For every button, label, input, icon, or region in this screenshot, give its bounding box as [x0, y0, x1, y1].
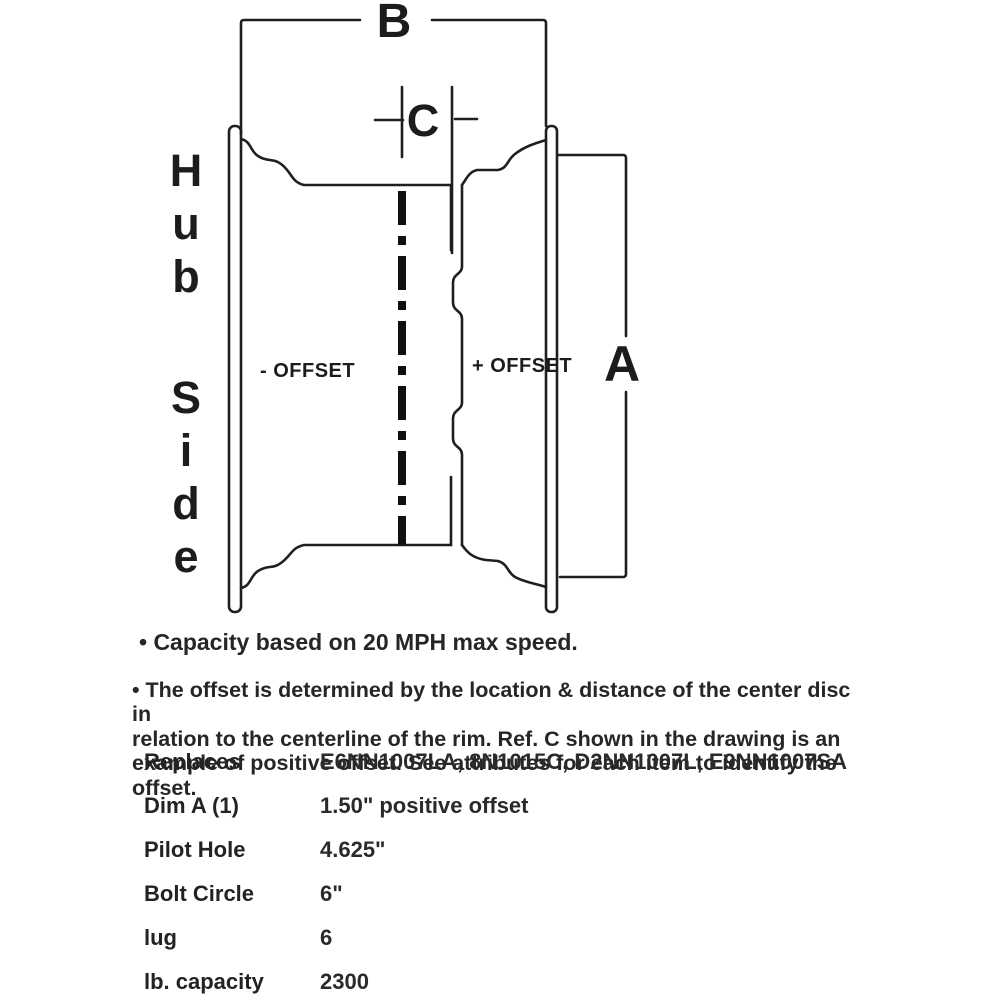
- spec-label: lb. capacity: [144, 970, 320, 993]
- spec-row-lb-capacity: lb. capacity 2300: [144, 970, 864, 993]
- negative-offset-label: - OFFSET: [260, 360, 355, 382]
- dim-b-bracket-right: [432, 20, 546, 126]
- rim-cross-section-diagram: B C A - OFFSET + OFFS: [0, 0, 1000, 645]
- hub-side-label-word2: Side: [161, 371, 211, 583]
- disc-profile: [453, 185, 462, 545]
- spec-value: 6: [320, 926, 332, 949]
- spec-value: 6": [320, 882, 343, 905]
- spec-row-bolt-circle: Bolt Circle 6": [144, 882, 864, 905]
- scanned-wheel-spec-sheet: B C A - OFFSET + OFFS: [0, 0, 1000, 1000]
- rim-bottom-profile-right: [462, 545, 546, 587]
- dim-b-label: B: [377, 0, 412, 48]
- positive-offset-label: + OFFSET: [472, 355, 572, 377]
- spec-row-pilot-hole: Pilot Hole 4.625": [144, 838, 864, 861]
- spec-label: Dim A (1): [144, 794, 320, 817]
- dim-c-label: C: [407, 95, 440, 146]
- dim-c-tick-left: [375, 87, 403, 157]
- spec-value: 1.50" positive offset: [320, 794, 529, 817]
- offset-note-line2: relation to the centerline of the rim. R…: [132, 727, 872, 751]
- spec-row-replaces: Replaces E6NN1007LA, 8N1015C, D2NN1007L,…: [144, 750, 864, 773]
- spec-label: Pilot Hole: [144, 838, 320, 861]
- spec-label: Bolt Circle: [144, 882, 320, 905]
- spec-value: E6NN1007LA, 8N1015C, D2NN1007L, E9NN1007…: [320, 750, 847, 773]
- dim-b-bracket-left: [241, 20, 360, 134]
- spec-label: lug: [144, 926, 320, 949]
- spec-value: 4.625": [320, 838, 385, 861]
- dim-a-label: A: [604, 336, 640, 392]
- hub-side-label-word1: Hub: [161, 144, 211, 303]
- rim-left-flange: [229, 126, 241, 612]
- scan-content: B C A - OFFSET + OFFS: [0, 0, 1000, 1000]
- spec-label: Replaces: [144, 750, 320, 773]
- offset-note-line1: • The offset is determined by the locati…: [132, 678, 872, 727]
- rim-top-profile-right: [462, 140, 546, 185]
- spec-row-lug: lug 6: [144, 926, 864, 949]
- spec-row-dim-a: Dim A (1) 1.50" positive offset: [144, 794, 864, 817]
- spec-table: Replaces E6NN1007LA, 8N1015C, D2NN1007L,…: [144, 750, 864, 1000]
- rim-bottom-profile-left: [241, 545, 451, 588]
- capacity-note: • Capacity based on 20 MPH max speed.: [139, 629, 578, 656]
- spec-value: 2300: [320, 970, 369, 993]
